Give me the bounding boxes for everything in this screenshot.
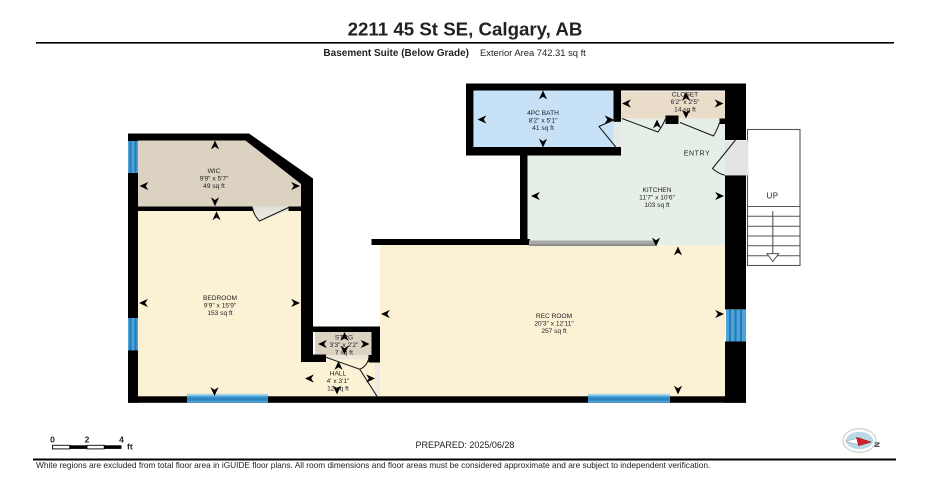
svg-text:White regions are excluded fro: White regions are excluded from total fl… [36,460,710,470]
svg-text:2211 45 St SE, Calgary, AB: 2211 45 St SE, Calgary, AB [348,19,583,40]
svg-text:ENTRY: ENTRY [684,151,711,158]
svg-text:UP: UP [766,192,778,201]
svg-text:Basement Suite (Below Grade): Basement Suite (Below Grade) [323,48,469,59]
svg-text:Exterior Area 742.31 sq ft: Exterior Area 742.31 sq ft [480,47,586,58]
svg-text:BEDROOM9'9" x 15'9"153 sq ft: BEDROOM9'9" x 15'9"153 sq ft [203,295,237,317]
svg-text:N: N [873,442,882,447]
svg-text:ft: ft [127,442,133,452]
svg-text:0: 0 [50,435,55,445]
svg-text:PREPARED: 2025/06/28: PREPARED: 2025/06/28 [416,440,515,450]
svg-text:2: 2 [85,435,90,445]
svg-text:4: 4 [119,435,124,445]
